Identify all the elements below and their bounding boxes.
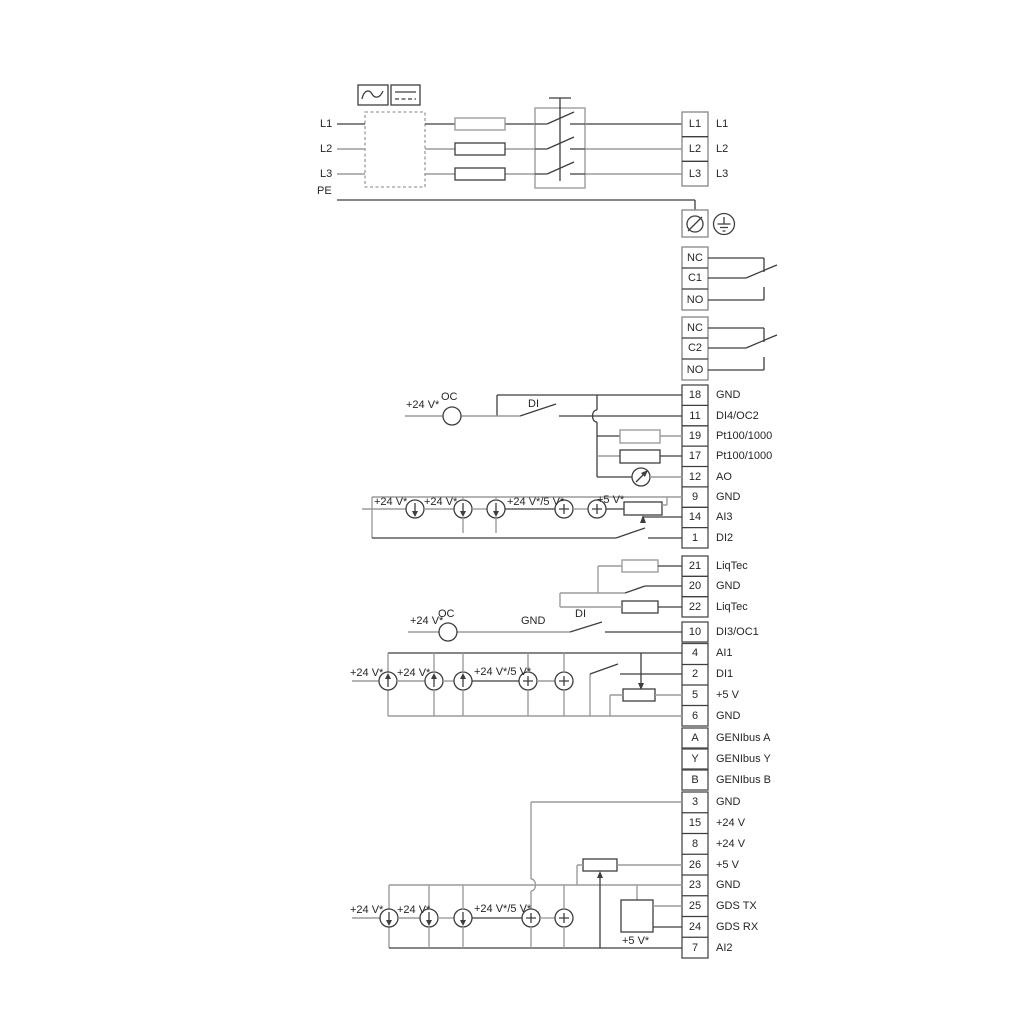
relay1-no: NO xyxy=(682,292,708,308)
ai1-sensor-group xyxy=(352,644,708,727)
terminal-17-label: Pt100/1000 xyxy=(716,448,772,464)
terminal-2-label: DI1 xyxy=(716,666,733,682)
relay1-nc-wire xyxy=(708,258,764,272)
fuse-l1 xyxy=(455,118,505,130)
wire-pe xyxy=(337,200,695,210)
terminal-a-label: GENIbus A xyxy=(716,730,770,746)
terminal-11: 11 xyxy=(682,408,708,424)
wire-label-v24-row11: +24 V* xyxy=(406,397,439,413)
relay1-contact xyxy=(708,265,777,278)
pt100-resistor-19 xyxy=(620,430,660,443)
terminal-11-label: DI4/OC2 xyxy=(716,408,759,424)
liqtec-sensor-21 xyxy=(622,560,658,572)
terminal-14-label: AI3 xyxy=(716,509,733,525)
terminal-2: 2 xyxy=(682,666,708,682)
terminal-19: 19 xyxy=(682,428,708,444)
terminal-l1: L1 xyxy=(682,116,708,132)
fuse-l2 xyxy=(455,143,505,155)
terminal-18-label: GND xyxy=(716,387,740,403)
di4-switch xyxy=(520,404,682,416)
terminal-15: 15 xyxy=(682,815,708,831)
ai2-sensor-group xyxy=(352,792,708,958)
terminal-9-label: GND xyxy=(716,489,740,505)
di1-switch xyxy=(590,664,682,674)
open-collector-icon xyxy=(443,407,461,425)
terminal-3: 3 xyxy=(682,794,708,810)
terminal-7: 7 xyxy=(682,940,708,956)
terminal-l3: L3 xyxy=(682,166,708,182)
terminal-12-label: AO xyxy=(716,469,732,485)
relay1-nc: NC xyxy=(682,250,708,266)
terminal-9: 9 xyxy=(682,489,708,505)
terminal-26-label: +5 V xyxy=(716,857,739,873)
terminal-b: B xyxy=(682,772,708,788)
terminal-1-label: DI2 xyxy=(716,530,733,546)
dc-symbol-box xyxy=(391,85,420,105)
wire-label-di-row10: DI xyxy=(575,606,586,622)
di3-section xyxy=(408,622,708,642)
wire-label-v24-ai1-2: +24 V* xyxy=(397,665,430,681)
wire-label-v24v5-ai1: +24 V*/5 V* xyxy=(474,664,531,680)
terminal-17: 17 xyxy=(682,448,708,464)
terminal-21: 21 xyxy=(682,558,708,574)
terminal-8-label: +24 V xyxy=(716,836,745,852)
ai1-potentiometer xyxy=(623,689,655,701)
terminal-24-label: GDS RX xyxy=(716,919,758,935)
relay2-c2: C2 xyxy=(682,340,708,356)
di2-switch xyxy=(616,528,645,538)
terminal-19-label: Pt100/1000 xyxy=(716,428,772,444)
label-l3-in: L3 xyxy=(320,166,332,182)
relay2-no-wire xyxy=(708,357,764,370)
terminal-25-label: GDS TX xyxy=(716,898,757,914)
wire-label-v24-ai3-2: +24 V* xyxy=(424,494,457,510)
terminal-4-label: AI1 xyxy=(716,645,733,661)
terminal-21-label: LiqTec xyxy=(716,558,748,574)
terminal-14: 14 xyxy=(682,509,708,525)
terminal-10-label: DI3/OC1 xyxy=(716,624,759,640)
wiring-diagram-svg xyxy=(0,0,1024,1024)
terminal-b-label: GENIbus B xyxy=(716,772,771,788)
wire-label-gnd-row10: GND xyxy=(521,613,545,629)
terminal-4: 4 xyxy=(682,645,708,661)
io-block-1-section xyxy=(405,385,708,548)
power-input-section xyxy=(337,85,735,237)
wire-label-v24v5-ai2: +24 V*/5 V* xyxy=(474,901,531,917)
ai3-potentiometer xyxy=(624,502,662,515)
terminal-l2-label: L2 xyxy=(716,141,728,157)
relay2-no: NO xyxy=(682,362,708,378)
terminal-6: 6 xyxy=(682,708,708,724)
terminal-l1-label: L1 xyxy=(716,116,728,132)
terminal-y: Y xyxy=(682,751,708,767)
terminal-l3-label: L3 xyxy=(716,166,728,182)
wire-label-oc-row11: OC xyxy=(441,389,458,405)
terminal-l2: L2 xyxy=(682,141,708,157)
terminal-12: 12 xyxy=(682,469,708,485)
wire-label-v24-ai2-2: +24 V* xyxy=(397,902,430,918)
terminal-20: 20 xyxy=(682,578,708,594)
wire-label-v24v5-ai3: +24 V*/5 V* xyxy=(507,494,564,510)
relay1-no-wire xyxy=(708,287,764,300)
wire-label-v24-ai1-1: +24 V* xyxy=(350,665,383,681)
gnd3-branch xyxy=(531,802,536,909)
label-l2-in: L2 xyxy=(320,141,332,157)
terminal-24: 24 xyxy=(682,919,708,935)
wire-label-di-row11: DI xyxy=(528,396,539,412)
pt100-resistor-17 xyxy=(620,450,660,463)
terminal-25: 25 xyxy=(682,898,708,914)
terminal-7-label: AI2 xyxy=(716,940,733,956)
terminal-y-label: GENIbus Y xyxy=(716,751,771,767)
wire-label-v5-ai3: +5 V* xyxy=(597,492,624,508)
gnd18-rail xyxy=(497,395,682,416)
liqtec-sensor-22 xyxy=(622,601,658,613)
wire-label-v5-gds: +5 V* xyxy=(622,933,649,949)
relay2-nc-wire xyxy=(708,328,764,342)
gds-sensor-box xyxy=(621,900,653,932)
di3-switch xyxy=(570,622,682,632)
terminal-20-label: GND xyxy=(716,578,740,594)
wiring-diagram: L1 L2 L3 PE L1 L2 L3 L1 L2 L3 NC C1 NO N… xyxy=(0,0,1024,1024)
label-l1-in: L1 xyxy=(320,116,332,132)
relay2-nc: NC xyxy=(682,320,708,336)
terminal-22-label: LiqTec xyxy=(716,599,748,615)
terminal-6-label: GND xyxy=(716,708,740,724)
terminal-18: 18 xyxy=(682,387,708,403)
wire-label-v24-ai2-1: +24 V* xyxy=(350,902,383,918)
fuse-l3 xyxy=(455,168,505,180)
terminal-10: 10 xyxy=(682,624,708,640)
terminal-5-label: +5 V xyxy=(716,687,739,703)
relay1-c1: C1 xyxy=(682,270,708,286)
terminal-8: 8 xyxy=(682,836,708,852)
wire-label-v24-ai3-1: +24 V* xyxy=(374,494,407,510)
terminal-26: 26 xyxy=(682,857,708,873)
terminal-3-label: GND xyxy=(716,794,740,810)
terminal-15-label: +24 V xyxy=(716,815,745,831)
terminal-23: 23 xyxy=(682,877,708,893)
label-pe: PE xyxy=(317,183,332,199)
terminal-5: 5 xyxy=(682,687,708,703)
terminal-a: A xyxy=(682,730,708,746)
terminal-22: 22 xyxy=(682,599,708,615)
branch-vertical xyxy=(593,395,598,477)
wire-label-oc-row10: OC xyxy=(438,606,455,622)
ai2-potentiometer xyxy=(583,859,617,871)
filter-box xyxy=(365,112,425,187)
terminal-1: 1 xyxy=(682,530,708,546)
relay2-contact xyxy=(708,335,777,348)
terminal-23-label: GND xyxy=(716,877,740,893)
